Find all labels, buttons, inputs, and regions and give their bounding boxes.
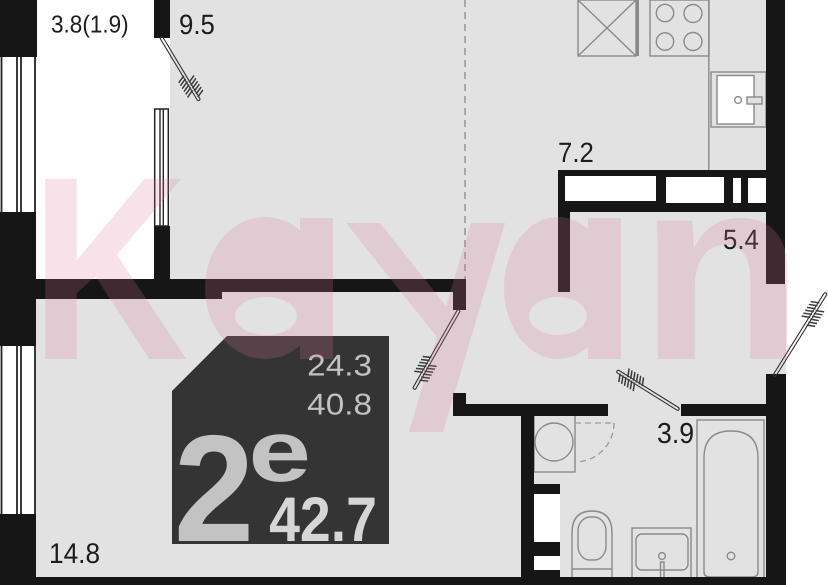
svg-text:2: 2	[174, 404, 254, 574]
svg-text:40.8: 40.8	[307, 389, 372, 422]
svg-text:9.5: 9.5	[179, 9, 215, 40]
svg-text:3.8(1.9): 3.8(1.9)	[51, 12, 129, 39]
svg-text:42.7: 42.7	[269, 485, 377, 555]
svg-text:K: K	[31, 122, 189, 415]
svg-text:n: n	[639, 122, 804, 415]
svg-text:14.8: 14.8	[49, 538, 100, 570]
svg-text:3.9: 3.9	[657, 418, 694, 450]
svg-text:7.2: 7.2	[558, 137, 594, 168]
